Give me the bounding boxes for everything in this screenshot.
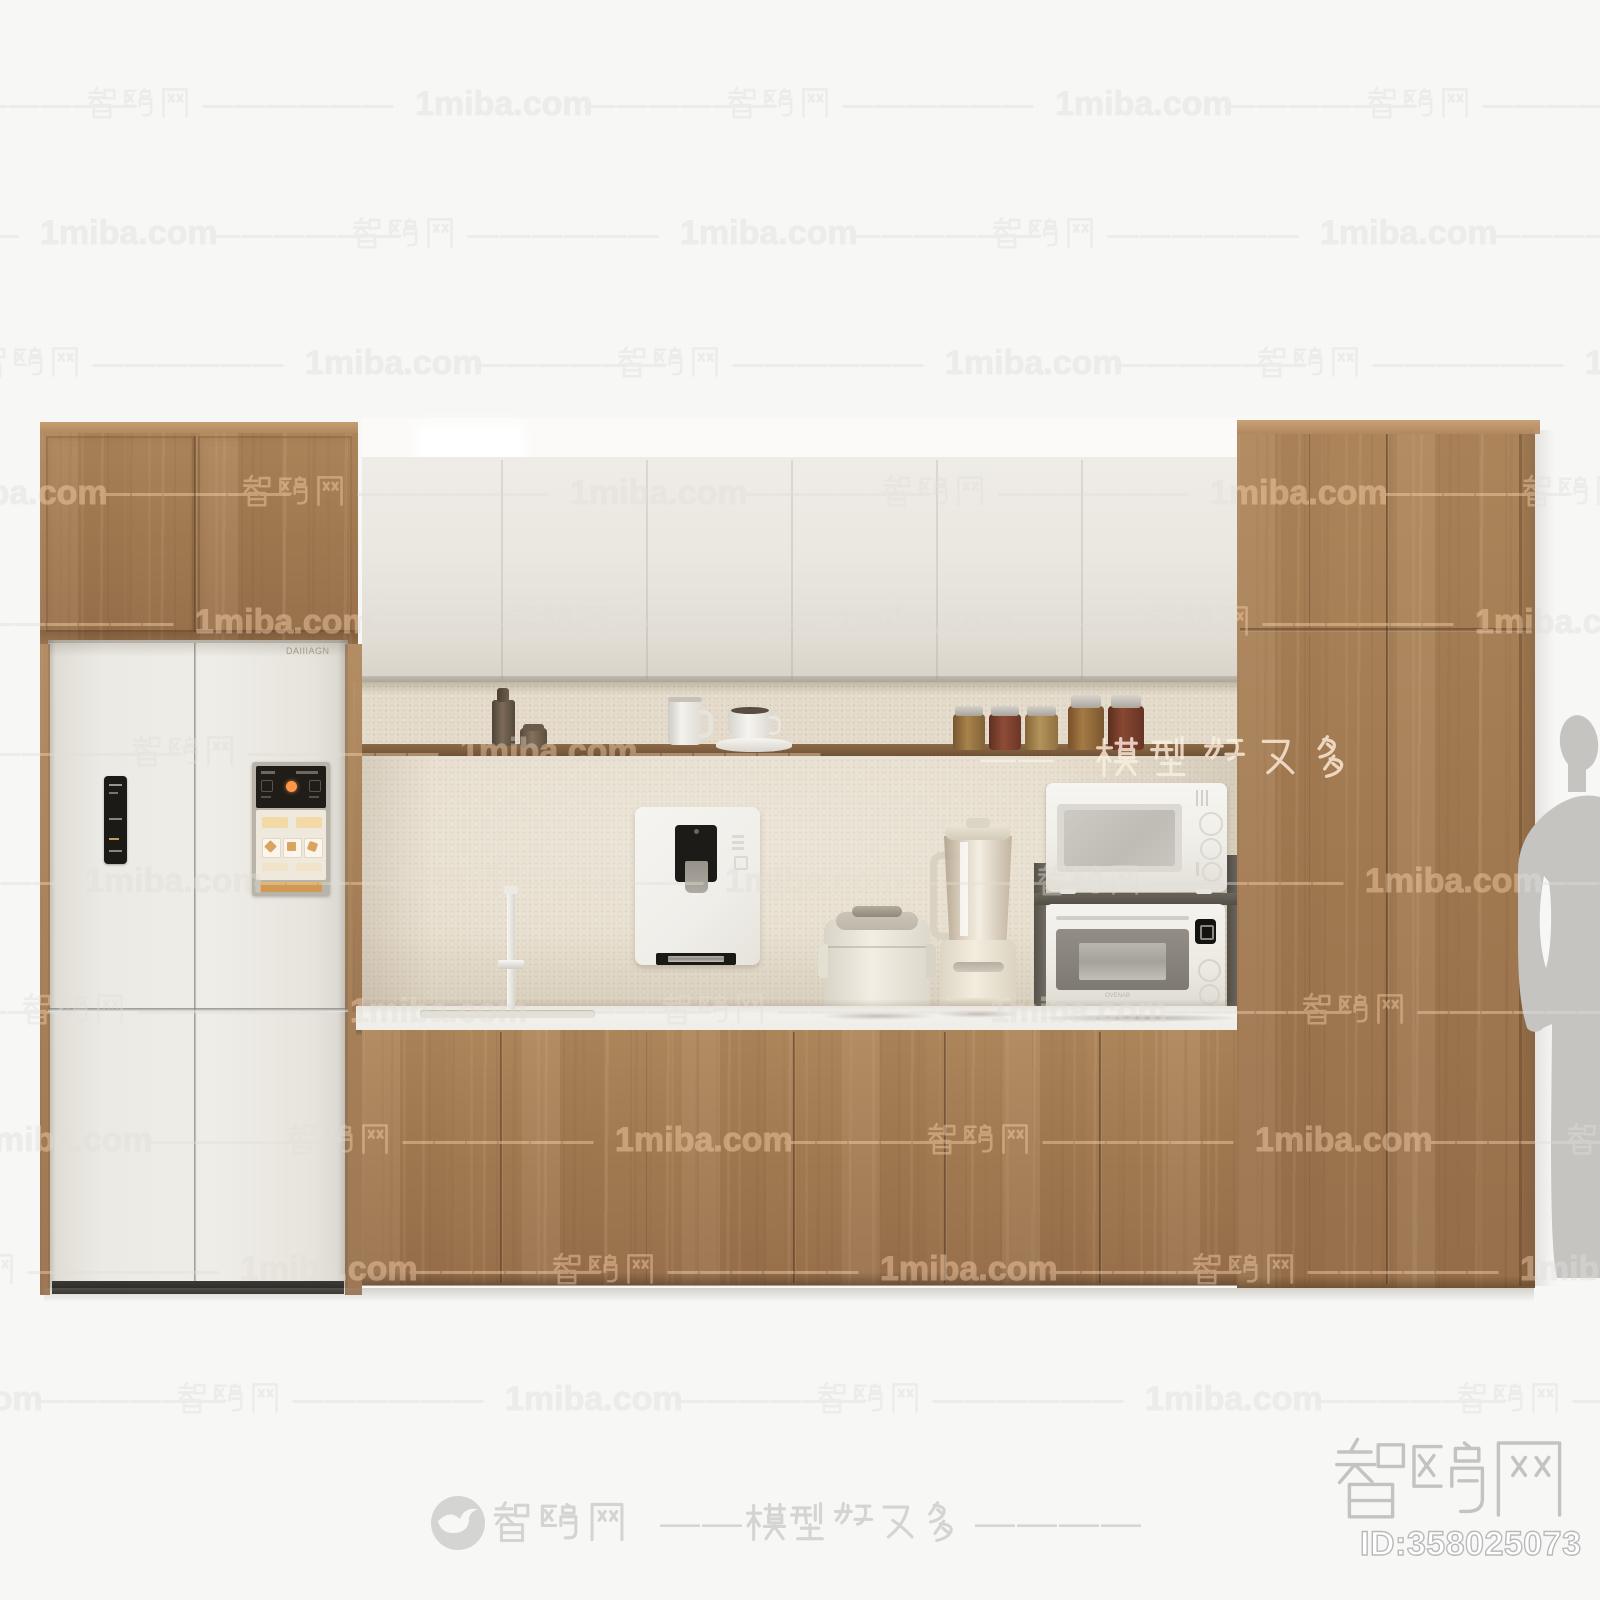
- svg-text:——————: ——————: [778, 994, 970, 1027]
- svg-text:——————: ——————: [1373, 347, 1565, 380]
- svg-text:1miba.com: 1miba.com: [0, 474, 108, 512]
- svg-text:1miba.com: 1miba.com: [1520, 1250, 1600, 1288]
- svg-text:1miba.com: 1miba.com: [990, 992, 1168, 1030]
- svg-text:1miba.com: 1miba.com: [1210, 474, 1388, 512]
- svg-text:1miba.com: 1miba.com: [195, 603, 373, 641]
- svg-text:——————: ——————: [668, 1254, 860, 1287]
- svg-text:————: ————: [975, 1501, 1143, 1545]
- svg-text:——————: ——————: [1308, 1254, 1500, 1287]
- svg-text:1miba.com: 1miba.com: [350, 992, 528, 1030]
- svg-text:——————: ——————: [843, 88, 1035, 121]
- svg-text:——————: ——————: [1535, 865, 1600, 898]
- svg-text:1miba.com: 1miba.com: [1365, 862, 1543, 900]
- svg-text:——————: ——————: [933, 1383, 1125, 1416]
- svg-text:——————: ——————: [248, 736, 440, 769]
- svg-text:——————: ——————: [733, 347, 925, 380]
- svg-text:1miba.com: 1miba.com: [305, 344, 483, 382]
- svg-text:1miba.com: 1miba.com: [680, 214, 858, 252]
- svg-text:1miba.com: 1miba.com: [1145, 1380, 1323, 1418]
- svg-text:——: ——: [660, 1501, 744, 1545]
- svg-text:1miba.com: 1miba.com: [505, 1380, 683, 1418]
- svg-text:1miba.com: 1miba.com: [725, 862, 903, 900]
- svg-text:1miba.com: 1miba.com: [1475, 603, 1600, 641]
- svg-text:——————: ——————: [138, 994, 330, 1027]
- svg-text:1miba.com: 1miba.com: [880, 1250, 1058, 1288]
- svg-text:1miba.com: 1miba.com: [240, 1250, 418, 1288]
- svg-text:——————: ——————: [513, 865, 705, 898]
- svg-text:1miba.com: 1miba.com: [1255, 1121, 1433, 1159]
- svg-text:1miba.com: 1miba.com: [570, 474, 748, 512]
- svg-text:1miba.com: 1miba.com: [460, 732, 638, 770]
- svg-text:——————: ——————: [0, 218, 20, 251]
- svg-text:1miba.com: 1miba.com: [415, 85, 593, 123]
- svg-text:——————: ——————: [1573, 1383, 1600, 1416]
- svg-text:——————: ——————: [1490, 218, 1600, 251]
- svg-text:——————: ——————: [0, 606, 175, 639]
- svg-text:——————: ——————: [1483, 88, 1600, 121]
- svg-text:——————: ——————: [998, 476, 1190, 509]
- svg-text:——————: ——————: [28, 1254, 220, 1287]
- svg-text:——————: ——————: [1418, 994, 1600, 1027]
- svg-text:1miba.com: 1miba.com: [615, 1121, 793, 1159]
- svg-text:——————: ——————: [1153, 865, 1345, 898]
- svg-text:——————: ——————: [468, 218, 660, 251]
- svg-text:——————: ——————: [93, 347, 285, 380]
- svg-text:——————: ——————: [0, 88, 137, 121]
- svg-text:——————: ——————: [293, 1383, 485, 1416]
- svg-text:——: ——: [980, 737, 1056, 778]
- svg-text:1miba.com: 1miba.com: [1585, 344, 1600, 382]
- svg-text:1miba.com: 1miba.com: [1055, 85, 1233, 123]
- svg-text:——————: ——————: [403, 1124, 595, 1157]
- svg-text:1miba.com: 1miba.com: [0, 1121, 153, 1159]
- svg-text:1miba.com: 1miba.com: [835, 603, 1013, 641]
- svg-text:——————: ——————: [1263, 606, 1455, 639]
- svg-text:——————: ——————: [623, 606, 815, 639]
- svg-text:——————: ——————: [1043, 1124, 1235, 1157]
- svg-text:1miba.com: 1miba.com: [1320, 214, 1498, 252]
- svg-text:1miba.com: 1miba.com: [40, 214, 218, 252]
- svg-text:1miba.com: 1miba.com: [945, 344, 1123, 382]
- svg-text:——————: ——————: [0, 865, 65, 898]
- svg-text:1miba.com: 1miba.com: [85, 862, 263, 900]
- svg-text:——————: ——————: [358, 476, 550, 509]
- svg-text:——————: ——————: [1108, 218, 1300, 251]
- svg-text:——————: ——————: [203, 88, 395, 121]
- svg-text:——————: ——————: [630, 736, 822, 769]
